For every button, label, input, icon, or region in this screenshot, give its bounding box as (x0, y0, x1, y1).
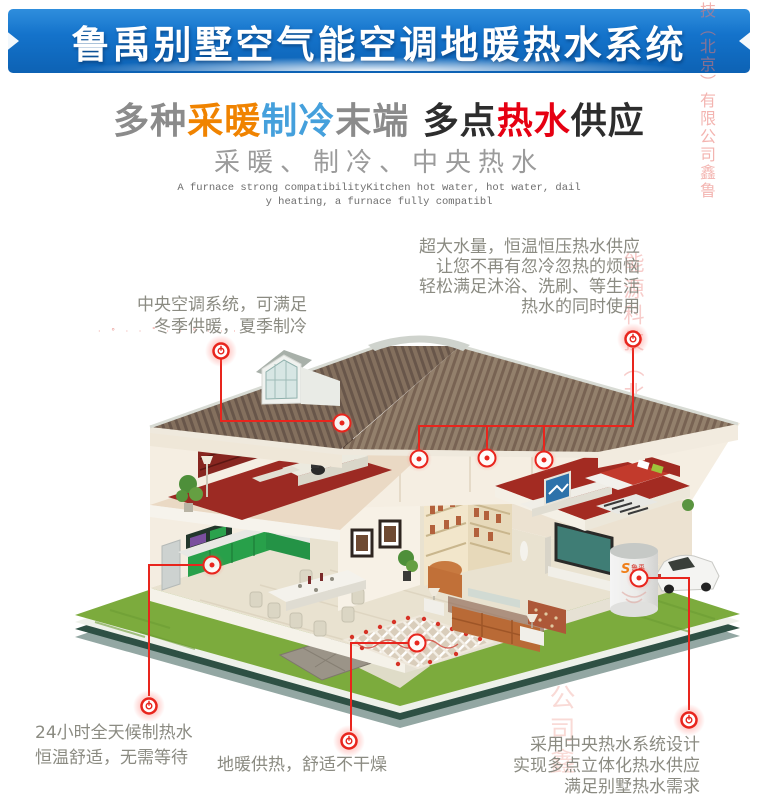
annotation-central-hot-water-design: 采用中央热水系统设计 实现多点立体化热水供应 满足别墅热水需求 (513, 735, 700, 798)
hotspot-central-ac[interactable] (205, 335, 237, 367)
marker-room-outlet-3[interactable] (531, 447, 557, 473)
annotation-line: 轻松满足沐浴、洗刷、等生活 (419, 277, 640, 297)
annotation-line: 让您不再有忽冷忽热的烦恼 (419, 257, 640, 277)
annotation-line: 恒温舒适，无需等待 (35, 746, 193, 771)
hotspot-floor-heating[interactable] (333, 725, 365, 757)
annotation-line: 冬季供暖，夏季制冷 (137, 316, 307, 338)
annotation-line: 实现多点立体化热水供应 (513, 756, 700, 777)
house-illustration: S 鲁禹 (0, 0, 758, 800)
hotspot-allday-hot-water[interactable] (133, 690, 165, 722)
annotation-floor-heating: 地暖供热，舒适不干燥 (217, 755, 387, 776)
annotation-line: 超大水量，恒温恒压热水供应 (419, 237, 640, 257)
annotation-line: 满足别墅热水需求 (513, 777, 700, 798)
dormer-window (256, 350, 340, 406)
annotation-hot-water-supply: 超大水量，恒温恒压热水供应 让您不再有忽冷忽热的烦恼 轻松满足沐浴、洗刷、等生活… (419, 237, 640, 317)
annotation-line: 24小时全天候制热水 (35, 721, 193, 746)
annotation-line: 采用中央热水系统设计 (513, 735, 700, 756)
marker-room-outlet-2[interactable] (474, 445, 500, 471)
marker-attic-unit[interactable] (329, 410, 355, 436)
annotation-central-ac: 中央空调系统，可满足 冬季供暖，夏季制冷 (137, 294, 307, 338)
annotation-line: 中央空调系统，可满足 (137, 294, 307, 316)
marker-water-tank[interactable] (626, 565, 652, 591)
marker-room-outlet-1[interactable] (406, 446, 432, 472)
marker-kitchen[interactable] (199, 552, 225, 578)
roof (150, 336, 738, 469)
annotation-allday-hot-water: 24小时全天候制热水 恒温舒适，无需等待 (35, 721, 193, 771)
statue (520, 541, 528, 561)
annotation-line: 地暖供热，舒适不干燥 (217, 755, 387, 776)
hotspot-central-hot-water[interactable] (673, 704, 705, 736)
hotspot-hot-water[interactable] (617, 323, 649, 355)
annotation-line: 热水的同时使用 (419, 297, 640, 317)
plant (682, 499, 694, 511)
marker-floor-heating[interactable] (404, 630, 430, 656)
